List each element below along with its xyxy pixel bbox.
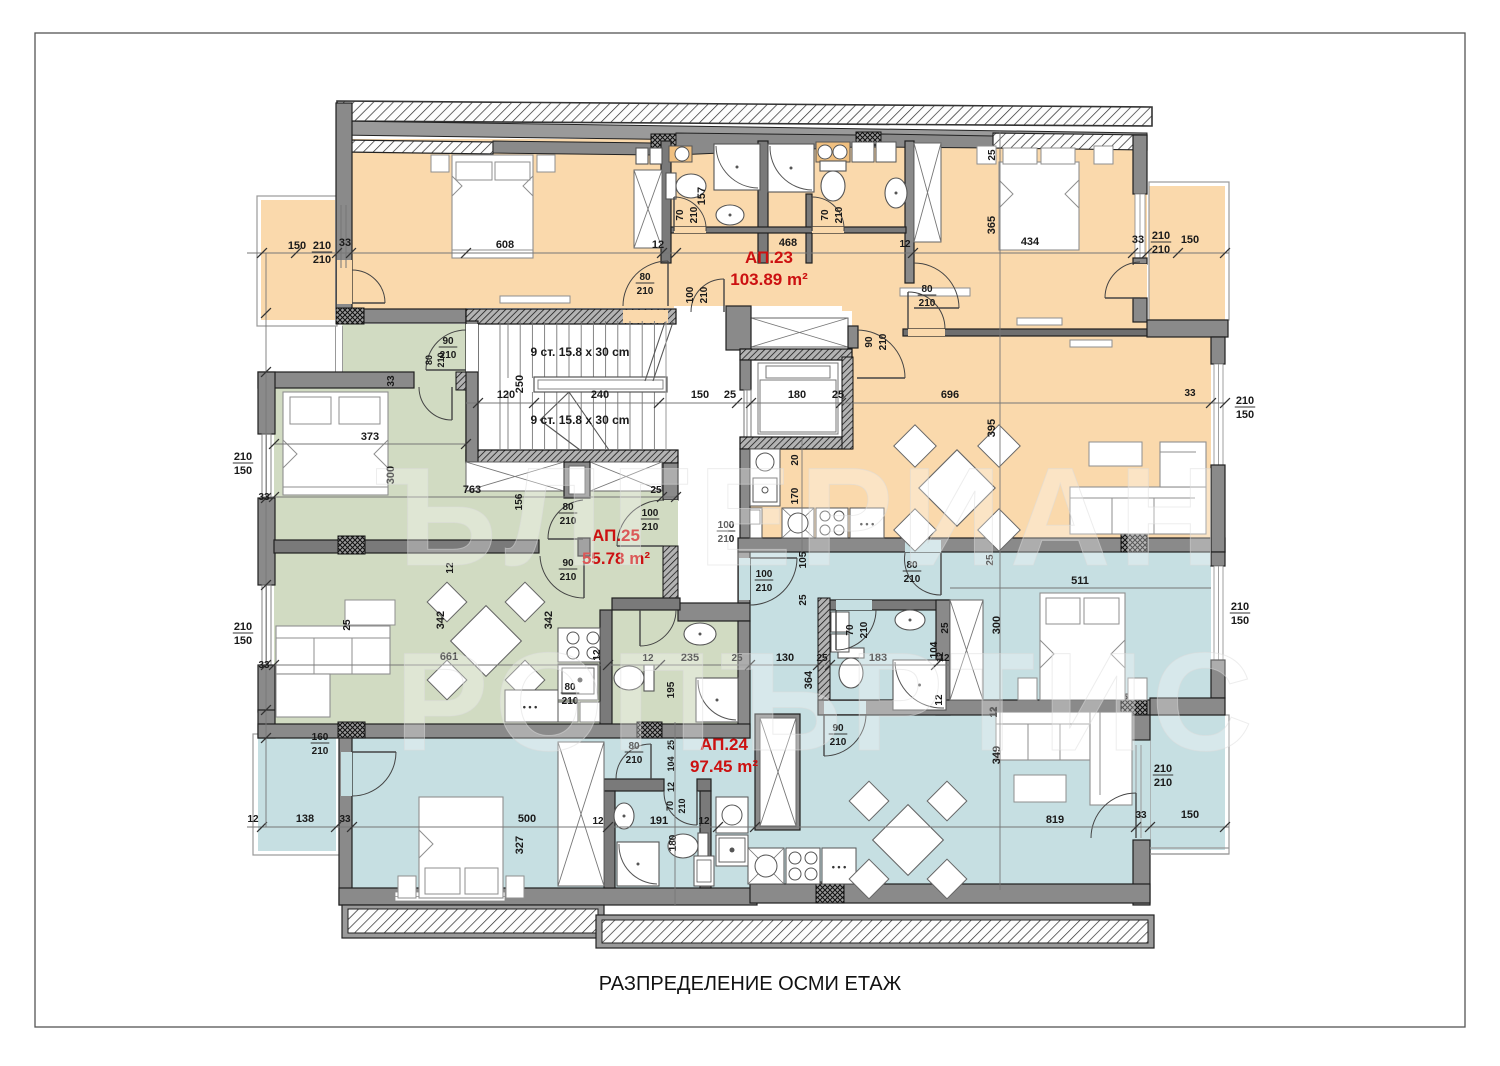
svg-text:500: 500: [518, 813, 536, 825]
svg-text:434: 434: [1021, 236, 1040, 248]
svg-text:70: 70: [665, 801, 675, 811]
svg-text:100: 100: [685, 286, 696, 303]
svg-text:210: 210: [1152, 230, 1170, 242]
svg-text:210: 210: [878, 333, 889, 350]
svg-text:70: 70: [820, 209, 831, 221]
svg-text:210: 210: [677, 798, 687, 813]
svg-text:210: 210: [1236, 395, 1254, 407]
svg-text:25: 25: [342, 619, 353, 631]
svg-text:12: 12: [247, 814, 259, 825]
svg-text:90: 90: [442, 336, 454, 347]
svg-text:250: 250: [514, 375, 526, 393]
svg-text:33: 33: [1132, 234, 1144, 246]
svg-text:210: 210: [834, 206, 845, 223]
svg-text:191: 191: [650, 815, 668, 827]
svg-text:210: 210: [1231, 601, 1249, 613]
svg-text:210: 210: [919, 298, 936, 309]
svg-text:33: 33: [258, 660, 270, 671]
svg-text:210: 210: [689, 206, 700, 223]
svg-text:150: 150: [234, 465, 252, 477]
svg-text:210: 210: [234, 621, 252, 633]
svg-text:150: 150: [1236, 409, 1254, 421]
svg-text:70: 70: [675, 209, 686, 221]
svg-text:12: 12: [652, 239, 664, 251]
svg-text:12: 12: [592, 816, 604, 827]
svg-text:9 ст. 15.8 x 30 cm: 9 ст. 15.8 x 30 cm: [531, 413, 630, 427]
svg-text:150: 150: [1181, 809, 1199, 821]
svg-text:157: 157: [696, 187, 708, 205]
svg-text:150: 150: [691, 389, 709, 401]
svg-text:696: 696: [941, 389, 959, 401]
svg-text:180: 180: [668, 834, 679, 851]
svg-text:210: 210: [699, 286, 710, 303]
svg-text:25: 25: [832, 389, 844, 401]
svg-text:138: 138: [296, 813, 314, 825]
svg-text:АП.23: АП.23: [745, 248, 793, 267]
svg-text:12: 12: [899, 239, 911, 250]
svg-text:90: 90: [864, 336, 875, 348]
svg-text:РАЗПРЕДЕЛЕНИЕ ОСМИ ЕТАЖ: РАЗПРЕДЕЛЕНИЕ ОСМИ ЕТАЖ: [599, 973, 902, 995]
svg-text:80: 80: [639, 272, 651, 283]
svg-text:240: 240: [591, 389, 609, 401]
svg-text:210: 210: [234, 451, 252, 463]
svg-text:120: 120: [497, 389, 515, 401]
svg-text:210: 210: [313, 240, 331, 252]
svg-text:150: 150: [1181, 234, 1199, 246]
svg-text:160: 160: [312, 732, 329, 743]
svg-text:210: 210: [313, 254, 331, 266]
svg-text:210: 210: [312, 746, 329, 757]
svg-text:80: 80: [424, 355, 434, 365]
svg-text:819: 819: [1046, 814, 1064, 826]
svg-text:210: 210: [637, 286, 654, 297]
svg-text:33: 33: [1184, 388, 1196, 399]
svg-text:395: 395: [986, 419, 998, 437]
svg-text:180: 180: [788, 389, 806, 401]
svg-text:12: 12: [698, 816, 710, 827]
svg-text:210: 210: [436, 352, 446, 367]
svg-text:12: 12: [666, 782, 676, 792]
svg-text:33: 33: [386, 375, 397, 387]
svg-text:103.89 m²: 103.89 m²: [730, 270, 808, 289]
svg-text:150: 150: [234, 635, 252, 647]
svg-text:33: 33: [339, 237, 351, 249]
svg-text:33: 33: [258, 492, 270, 503]
svg-text:РОПЪРТИС: РОПЪРТИС: [395, 623, 1261, 780]
svg-text:210: 210: [1152, 244, 1170, 256]
svg-text:33: 33: [1135, 810, 1147, 821]
svg-text:608: 608: [496, 239, 514, 251]
svg-text:9 ст. 15.8 x 30 cm: 9 ст. 15.8 x 30 cm: [531, 345, 630, 359]
svg-text:150: 150: [288, 240, 306, 252]
svg-text:33: 33: [339, 814, 351, 825]
svg-text:25: 25: [987, 149, 998, 161]
svg-text:327: 327: [514, 836, 526, 854]
svg-text:25: 25: [798, 594, 809, 606]
svg-text:365: 365: [986, 216, 998, 234]
svg-text:• • •: • • •: [832, 862, 846, 872]
svg-text:ЪЛГЕРИАН: ЪЛГЕРИАН: [375, 438, 1228, 595]
svg-text:25: 25: [724, 389, 736, 401]
svg-text:80: 80: [921, 284, 933, 295]
